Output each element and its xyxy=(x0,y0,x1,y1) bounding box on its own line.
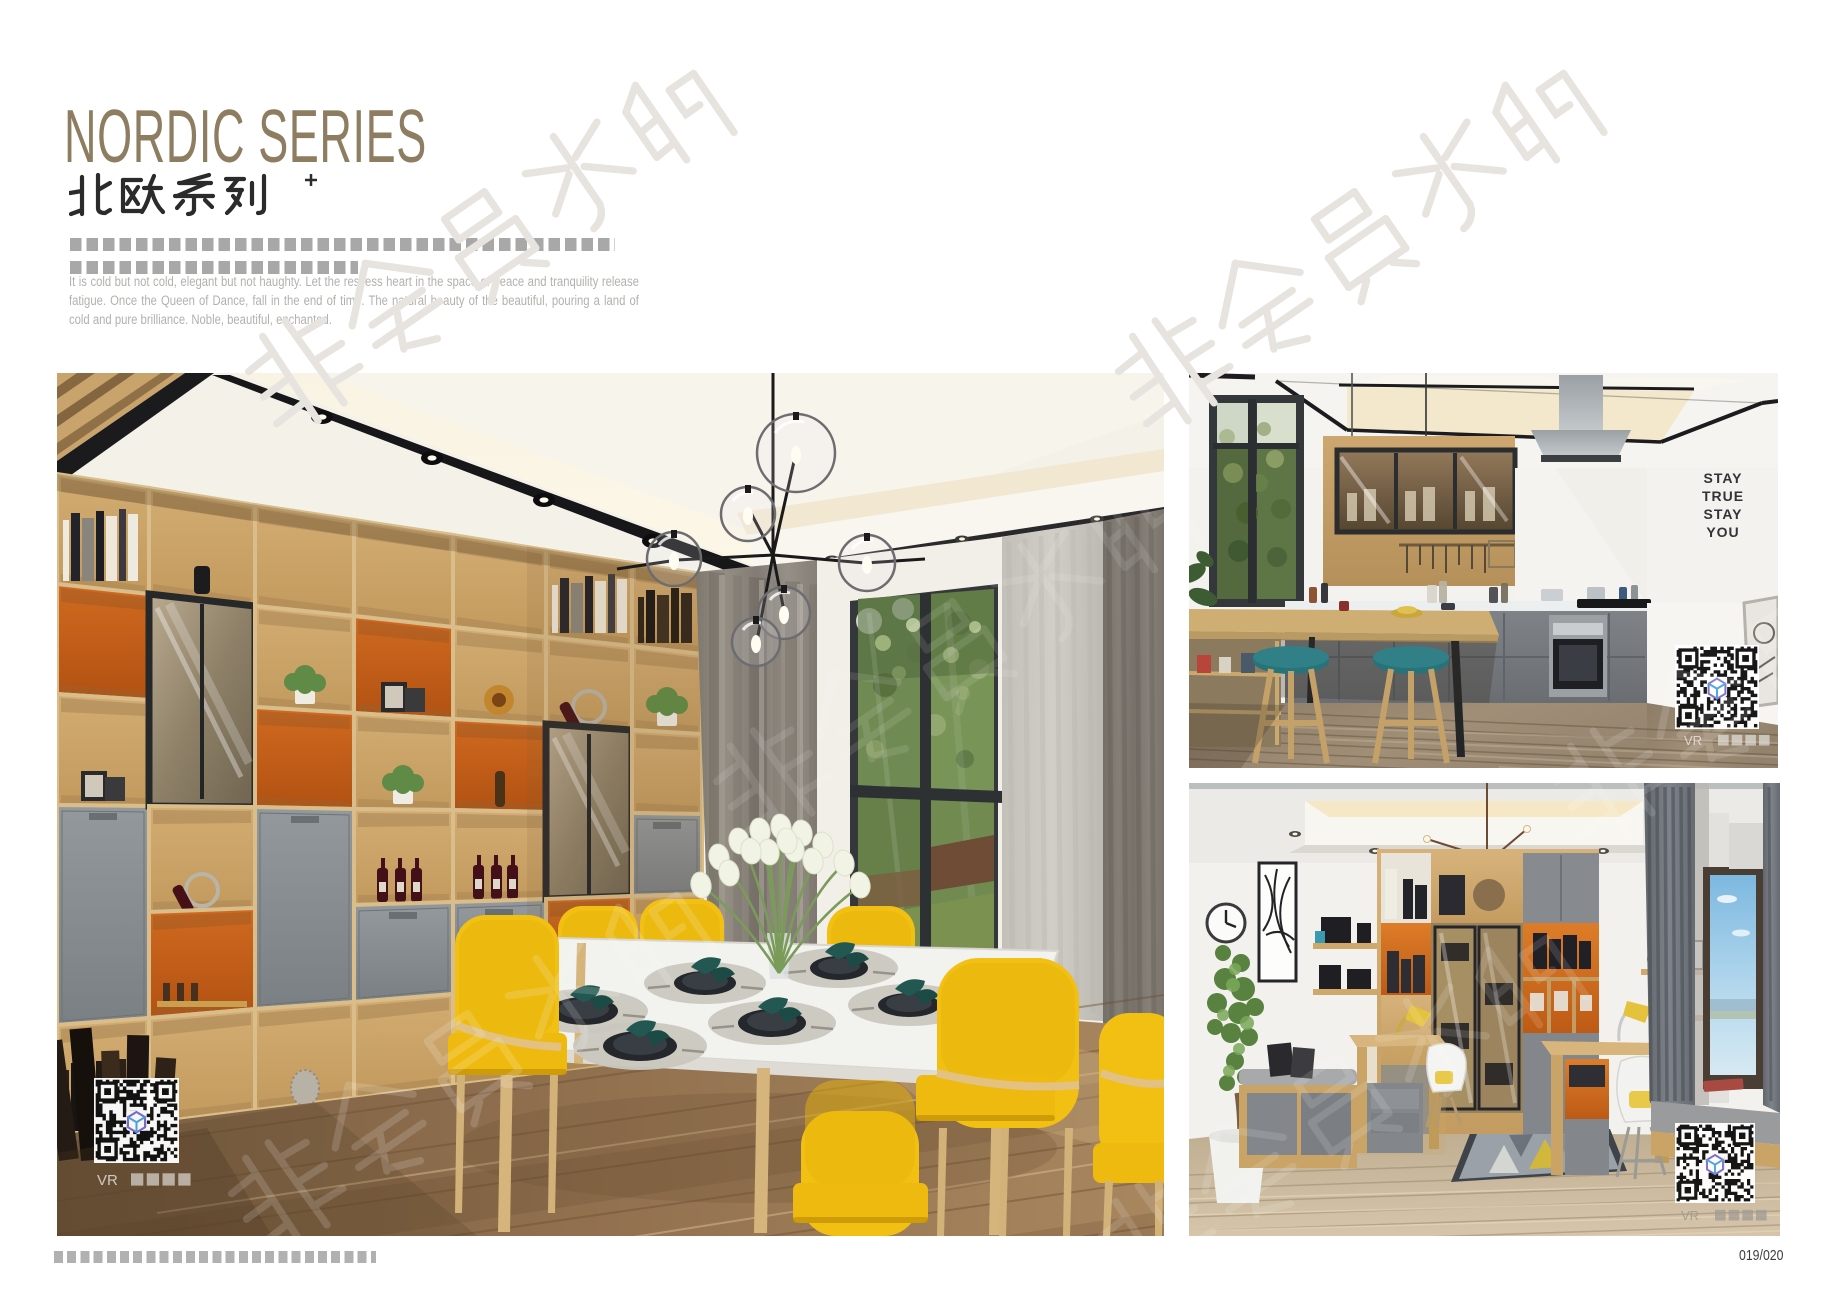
svg-text:VR: VR xyxy=(1681,1208,1699,1223)
svg-text:STAY: STAY xyxy=(1703,506,1742,522)
svg-text:VR: VR xyxy=(97,1172,118,1189)
svg-text:STAY: STAY xyxy=(1703,470,1742,486)
svg-text:TRUE: TRUE xyxy=(1702,488,1744,504)
svg-text:VR: VR xyxy=(1684,733,1702,748)
svg-text:YOU: YOU xyxy=(1706,524,1739,540)
